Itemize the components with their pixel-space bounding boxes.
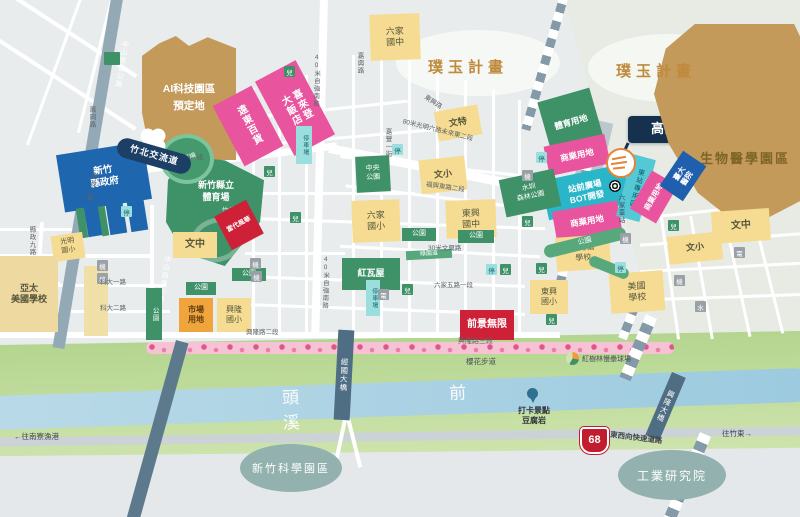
school-liujia-es: 六家 國小 xyxy=(351,199,400,243)
biomedical-park-label: 生物醫學園區 xyxy=(700,148,800,167)
child-park-square: 兒 xyxy=(290,212,301,223)
road-label-liujia5: 六家五路一段 xyxy=(434,279,473,289)
utility-square: 機 xyxy=(674,275,685,286)
road-label-xinglong3: 興隆路三段 xyxy=(458,336,493,346)
child-park-square: 兒 xyxy=(536,263,547,274)
small-green xyxy=(104,52,120,65)
child-park-square: 兒 xyxy=(522,216,533,227)
utility-square: 電 xyxy=(378,289,389,300)
road xyxy=(518,100,521,335)
child-park-square: 兒 xyxy=(284,66,295,77)
fareast-label: 遠東百貨 xyxy=(232,104,264,149)
park-block: 公園 xyxy=(402,228,436,241)
science-park-ellipse: 新竹科學園區 xyxy=(240,444,342,492)
park-block: 公園 xyxy=(458,230,494,243)
utility-square: 電 xyxy=(734,247,745,258)
softball-field-label: 紅樹林慢壘球場 xyxy=(582,354,631,364)
to-zhudong-label: 往竹東→ xyxy=(722,428,752,439)
sakura-band xyxy=(146,342,674,354)
utility-square: 機 xyxy=(522,170,533,181)
sketch-stroke xyxy=(611,161,627,165)
to-nanliao-label: ←往南寮漁港 xyxy=(14,431,59,442)
utility-square: 機 xyxy=(620,233,631,244)
school-wenzhong-west: 文中 xyxy=(173,232,217,258)
child-park-square: 兒 xyxy=(546,314,557,325)
puyu-plan-label-east: 璞玉計畫 xyxy=(616,60,696,81)
utility-square: 水 xyxy=(695,301,706,312)
tra-logo-icon xyxy=(609,180,621,192)
road-label-jiaxing: 嘉興路 xyxy=(354,52,364,84)
parking-square: 停 xyxy=(486,264,497,275)
station-sketch-marker xyxy=(606,148,636,178)
road-label-dongxing: 東興路 xyxy=(423,91,445,110)
sketch-stroke xyxy=(612,156,626,160)
route68-shield: 68 xyxy=(580,427,609,454)
child-park-square: 兒 xyxy=(402,284,413,295)
road-label-keda1: 科大一路 xyxy=(100,276,126,286)
road-label-fenggang: 鳳岡路 xyxy=(86,106,96,144)
school-dongxing-es: 東興 國小 xyxy=(530,280,568,314)
road-label-xinglong2: 興隆路二段 xyxy=(246,326,279,336)
softball-field-icon xyxy=(566,352,579,365)
itri-ellipse: 工業研究院 xyxy=(618,450,726,500)
sketch-stroke xyxy=(613,166,625,169)
utility-square: 機 xyxy=(251,271,262,282)
child-park-square: 兒 xyxy=(668,220,679,231)
market-land: 市場 用地 xyxy=(179,298,213,332)
tofu-rock-pin xyxy=(527,388,538,399)
utility-square: 機 xyxy=(97,260,108,271)
road-label-jiafeng1: 嘉豐一街 xyxy=(382,128,392,168)
road-label-keda2: 科大二路 xyxy=(100,302,126,312)
liujia-station-label: 六家車站 xyxy=(614,194,625,228)
sakura-walk-label: 櫻花步道 xyxy=(466,356,496,367)
road-label-wenxing30: 30米文興路 xyxy=(428,242,461,252)
utility-square: 機 xyxy=(250,258,261,269)
road-label-xianzheng9: 縣政九路 xyxy=(26,226,36,270)
school-wenxiao-east: 文小 xyxy=(667,231,724,264)
park-block: 公園 xyxy=(186,282,216,295)
parking-label: 停車場 xyxy=(300,135,308,156)
parking-square: 停 xyxy=(121,206,132,217)
road xyxy=(245,252,345,255)
parking-square: 停 xyxy=(615,262,626,273)
jingguo-bridge-label: 經國大橋 xyxy=(338,358,351,393)
tofu-rock-label: 打卡景點 豆腐岩 xyxy=(506,406,562,426)
puyu-plan-label-west: 璞玉計畫 xyxy=(428,56,508,77)
parking-square: 停 xyxy=(536,152,547,163)
park-label: 公園 xyxy=(150,307,158,322)
zhubei-hsr-area-map: 頭前溪 中山高速公路 中山高速公路 xyxy=(0,0,800,517)
parking-label: 停車場 xyxy=(369,288,377,309)
park-strip: 公園 xyxy=(146,288,162,340)
road xyxy=(352,55,355,335)
school-liujia-jh: 六家 國中 xyxy=(369,13,421,61)
road-label-ziqiang: 40米自強南路 xyxy=(318,256,331,332)
parking-square: 停 xyxy=(392,144,403,155)
child-park-square: 兒 xyxy=(264,166,275,177)
child-park-square: 兒 xyxy=(500,264,511,275)
parking-lot-strip: 停車場 xyxy=(296,126,312,164)
